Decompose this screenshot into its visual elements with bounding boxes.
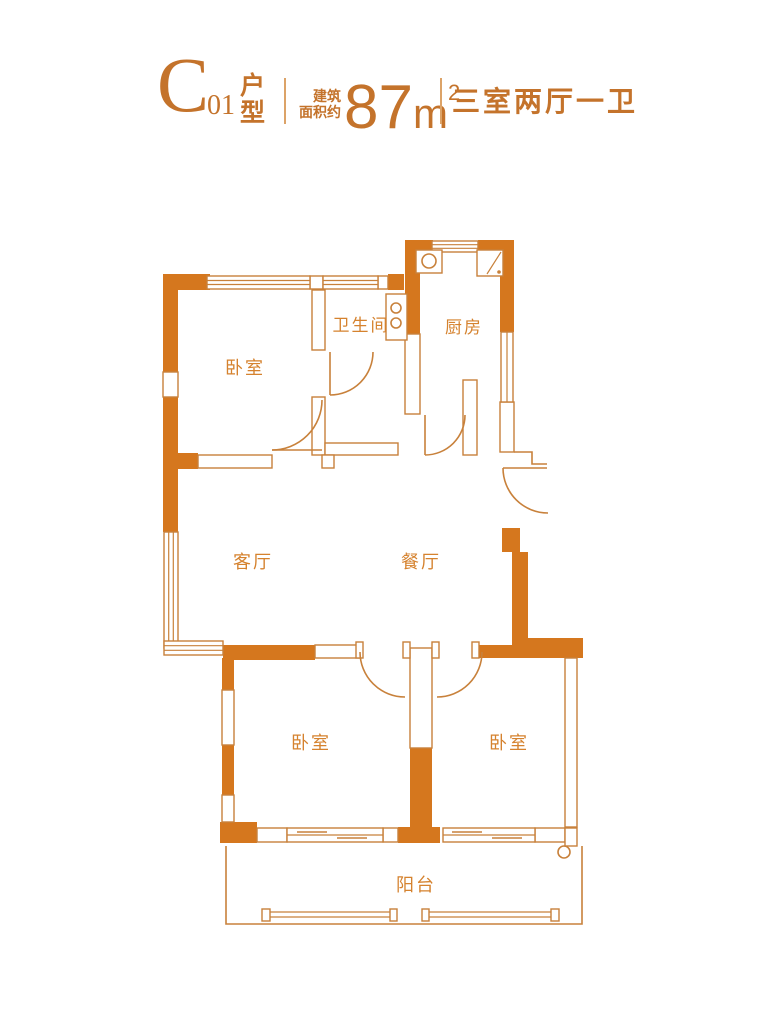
- sliding-window-bedroom-southwest: [287, 828, 383, 842]
- room-label-dining-room: 餐厅: [401, 552, 441, 572]
- floorplan-page: C 01 户 型 建筑 面积约 87m2 三室两厅一卫: [0, 0, 780, 1031]
- room-label-balcony: 阳台: [396, 875, 436, 895]
- door-kitchen: [425, 415, 465, 455]
- room-label-bathroom: 卫生间: [333, 316, 390, 335]
- kitchen-counter-icon: [477, 250, 503, 276]
- window-bedroom-north: [207, 276, 310, 289]
- room-labels: 卧室 卫生间 厨房 客厅 餐厅 卧室 卧室 阳台: [225, 316, 529, 895]
- door-entry: [503, 452, 548, 513]
- floor-drain-icon: [558, 846, 570, 858]
- corner-window-living: [164, 532, 223, 655]
- window-kitchen-right: [501, 332, 513, 402]
- sliding-window-bedroom-southeast: [443, 828, 535, 842]
- room-label-bedroom-southwest: 卧室: [291, 733, 331, 753]
- room-label-bedroom-southeast: 卧室: [489, 733, 529, 753]
- room-label-bedroom-north: 卧室: [225, 358, 265, 378]
- door-bedroom-southeast: [432, 642, 482, 697]
- window-bathroom: [323, 276, 378, 289]
- room-label-kitchen: 厨房: [445, 318, 483, 337]
- room-label-living-room: 客厅: [233, 552, 273, 572]
- door-bedroom-southwest: [356, 642, 410, 697]
- door-bathroom: [330, 352, 373, 395]
- floor-plan: 卧室 卫生间 厨房 客厅 餐厅 卧室 卧室 阳台: [0, 0, 780, 1031]
- kitchen-sink-icon: [416, 250, 442, 273]
